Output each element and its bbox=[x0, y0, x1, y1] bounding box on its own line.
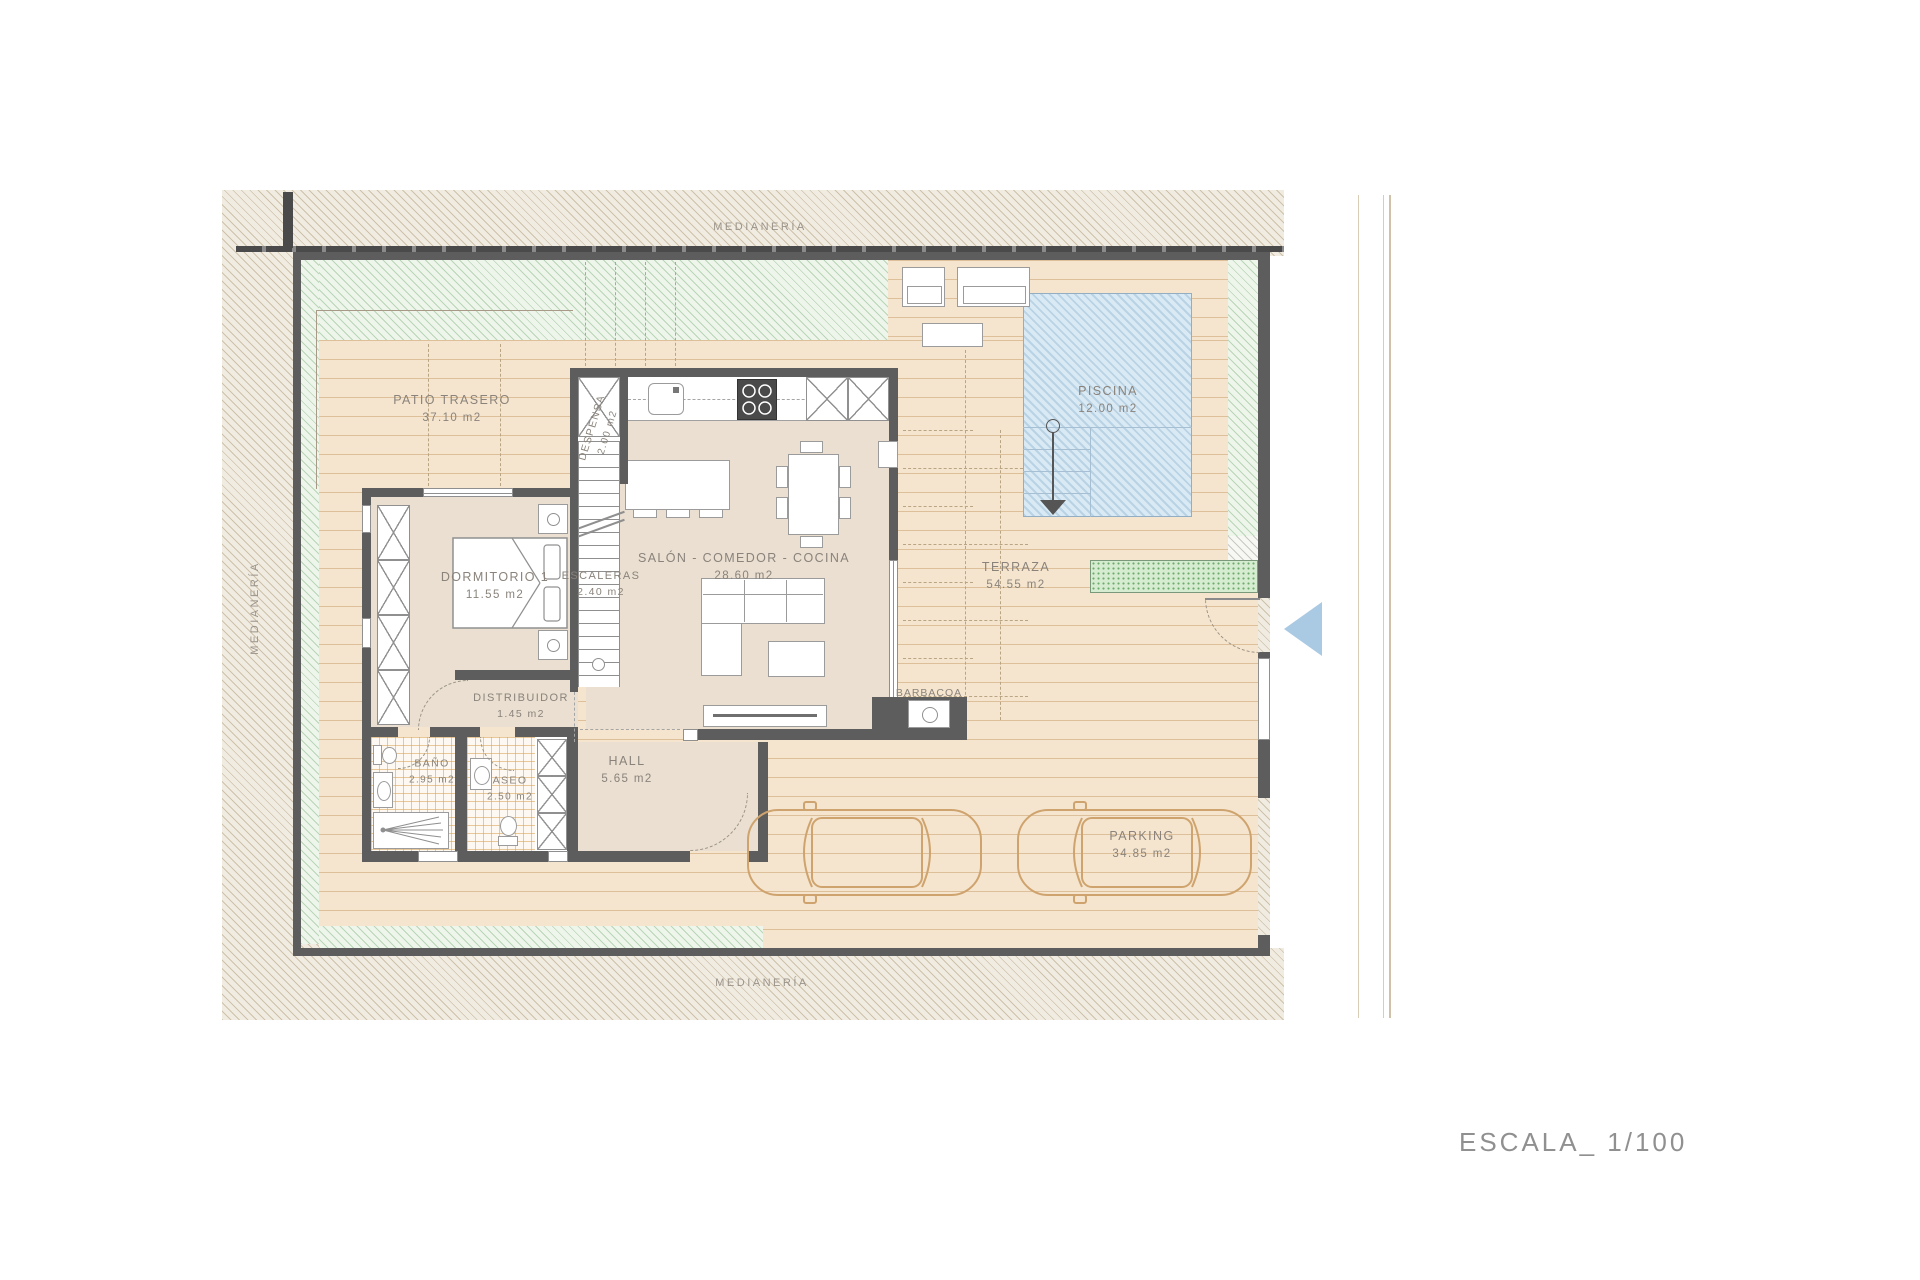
toilet-icon bbox=[382, 747, 397, 764]
room-boundary-dash bbox=[580, 729, 680, 730]
label-dormitorio-1: DORMITORIO 1 11.55 m2 bbox=[441, 568, 549, 604]
wardrobe-cell bbox=[377, 670, 410, 725]
terrace-joist-line bbox=[903, 620, 1028, 621]
bedroom-window bbox=[362, 505, 371, 533]
green-margin-bottom bbox=[319, 926, 763, 948]
plot-wall-left bbox=[293, 252, 301, 956]
terrace-joist-line bbox=[903, 582, 973, 583]
wall-living-top bbox=[570, 368, 898, 377]
entrance-gate-leaf bbox=[1205, 598, 1260, 600]
washbasin bbox=[373, 772, 393, 808]
dining-chair bbox=[800, 536, 823, 548]
bench bbox=[922, 323, 983, 347]
terrace-joist-line bbox=[903, 658, 973, 659]
basin-bowl-icon bbox=[377, 781, 391, 801]
closet-cell bbox=[537, 813, 567, 850]
planter bbox=[1090, 560, 1258, 593]
bath-window bbox=[418, 851, 458, 862]
wall-living-bottom bbox=[698, 729, 967, 740]
wall-bath-top bbox=[515, 727, 578, 737]
window-box-inner bbox=[963, 286, 1026, 304]
medianeria-label-top: MEDIANERÍA bbox=[713, 221, 806, 233]
dining-chair bbox=[839, 497, 851, 519]
deck-joint-line bbox=[965, 350, 966, 730]
pool-step-line bbox=[1023, 493, 1090, 494]
terrace-joist-line bbox=[903, 468, 1028, 469]
deck-joint-line bbox=[675, 262, 676, 366]
wall-stair-left bbox=[570, 377, 578, 692]
entrance-arrow-icon bbox=[1284, 602, 1322, 656]
sofa-back-line bbox=[703, 594, 823, 595]
window-box bbox=[957, 267, 1030, 307]
bath-window bbox=[548, 851, 568, 862]
pillar bbox=[878, 441, 898, 468]
dining-chair bbox=[800, 441, 823, 453]
car bbox=[742, 800, 987, 905]
label-escaleras: ESCALERAS 2.40 m2 bbox=[562, 568, 641, 600]
pool-ladder-icon bbox=[1046, 419, 1060, 433]
neighbor-boundary-line bbox=[1389, 195, 1391, 1018]
window-box-inner bbox=[907, 286, 942, 304]
wardrobe-cell bbox=[377, 505, 410, 560]
closet-cell bbox=[537, 739, 567, 776]
stove-icon bbox=[737, 379, 777, 420]
label-patio-trasero: PATIO TRASERO 37.10 m2 bbox=[393, 391, 511, 427]
wall-bedroom-bottom bbox=[455, 670, 578, 680]
window-mullion bbox=[424, 493, 512, 494]
toilet-tank bbox=[498, 836, 518, 846]
shower-spray-icon bbox=[377, 815, 447, 846]
wall-closet-right bbox=[567, 737, 578, 851]
deck-joint-line bbox=[615, 262, 616, 366]
wall-bath-divider bbox=[455, 737, 467, 851]
pool-step-line bbox=[1023, 471, 1090, 472]
nightstand bbox=[538, 630, 568, 660]
kitchen-island bbox=[625, 460, 730, 510]
wall-house-bottom bbox=[362, 851, 690, 862]
faucet-icon bbox=[673, 387, 679, 393]
boundary-corner-stub bbox=[283, 192, 293, 248]
dining-chair bbox=[776, 497, 788, 519]
pool-step-line bbox=[1023, 449, 1090, 450]
sofa-cushion-line bbox=[744, 580, 745, 622]
dining-chair bbox=[776, 466, 788, 488]
green-margin-right bbox=[1228, 260, 1258, 536]
bedroom-window bbox=[362, 618, 371, 648]
terrace-joist-line bbox=[903, 544, 1028, 545]
label-terraza: TERRAZA 54.55 m2 bbox=[982, 558, 1050, 594]
room-boundary-dash bbox=[574, 692, 575, 742]
plot-wall-right bbox=[1258, 252, 1270, 598]
lamp-icon bbox=[547, 639, 560, 652]
dining-table bbox=[788, 454, 839, 535]
street-window bbox=[1258, 658, 1270, 740]
sliding-door-track bbox=[893, 561, 894, 699]
stair-post-icon bbox=[592, 658, 605, 671]
floor-plan-page: MEDIANERÍA MEDIANERÍA MEDIANERÍA PATIO T… bbox=[0, 0, 1920, 1280]
scale-label: ESCALA_ 1/100 bbox=[1459, 1127, 1687, 1158]
kitchen-cabinet bbox=[806, 377, 848, 421]
sofa-cushion-line bbox=[786, 580, 787, 622]
sliding-door bbox=[889, 560, 898, 700]
label-aseo: ASEO 2.50 m2 bbox=[487, 774, 533, 805]
staircase bbox=[578, 441, 620, 687]
medianeria-label-bottom: MEDIANERÍA bbox=[715, 977, 808, 989]
plot-wall-right bbox=[1258, 935, 1270, 956]
toilet-icon bbox=[500, 816, 517, 836]
wardrobe-cell bbox=[377, 560, 410, 615]
tv-icon bbox=[713, 714, 817, 717]
label-hall: HALL 5.65 m2 bbox=[601, 752, 652, 788]
closet-cell bbox=[537, 776, 567, 813]
label-barbacoa: BARBACOA bbox=[896, 687, 962, 699]
wall-bath-top bbox=[362, 727, 398, 737]
wall-bedroom-left bbox=[362, 488, 371, 862]
label-parking: PARKING 34.85 m2 bbox=[1109, 827, 1174, 863]
label-distribuidor: DISTRIBUIDOR 1.45 m2 bbox=[473, 690, 569, 722]
pool-step-line bbox=[1090, 427, 1091, 517]
wardrobe-cell bbox=[377, 615, 410, 670]
deck-joint-line bbox=[585, 262, 586, 366]
toilet-tank bbox=[373, 745, 382, 765]
neighbor-boundary-line bbox=[1383, 195, 1384, 1018]
pool-arrow-icon bbox=[1040, 500, 1066, 515]
plot-wall-top bbox=[293, 252, 1266, 260]
gray-hatch-patch bbox=[1228, 536, 1258, 562]
dining-chair bbox=[839, 466, 851, 488]
bedroom-window bbox=[423, 488, 513, 497]
terrace-joist-line bbox=[903, 430, 973, 431]
pillar bbox=[683, 729, 698, 741]
wall-stair-right bbox=[620, 377, 628, 484]
sofa-chaise bbox=[701, 623, 742, 676]
deck-joint-line bbox=[645, 262, 646, 366]
plot-wall-right bbox=[1258, 740, 1270, 798]
window-box bbox=[902, 267, 945, 307]
medianeria-label-left: MEDIANERÍA bbox=[249, 561, 261, 654]
barbecue-icon bbox=[908, 700, 950, 728]
barbecue-grill-icon bbox=[922, 707, 938, 723]
kitchen-cabinet bbox=[848, 377, 889, 421]
lamp-icon bbox=[547, 513, 560, 526]
pool-ladder-icon bbox=[1052, 432, 1054, 502]
coffee-table bbox=[768, 641, 825, 677]
nightstand bbox=[538, 504, 568, 534]
plot-wall-bottom bbox=[293, 948, 1270, 956]
terrace-joist-line bbox=[903, 506, 973, 507]
label-salon-comedor-cocina: SALÓN - COMEDOR - COCINA 28.60 m2 bbox=[638, 549, 850, 585]
label-bano: BAÑO 2.95 m2 bbox=[409, 757, 455, 788]
neighbor-boundary-line bbox=[1358, 195, 1359, 1018]
sink-icon bbox=[648, 383, 684, 415]
label-piscina: PISCINA 12.00 m2 bbox=[1078, 382, 1138, 418]
shower-tray bbox=[373, 812, 449, 849]
